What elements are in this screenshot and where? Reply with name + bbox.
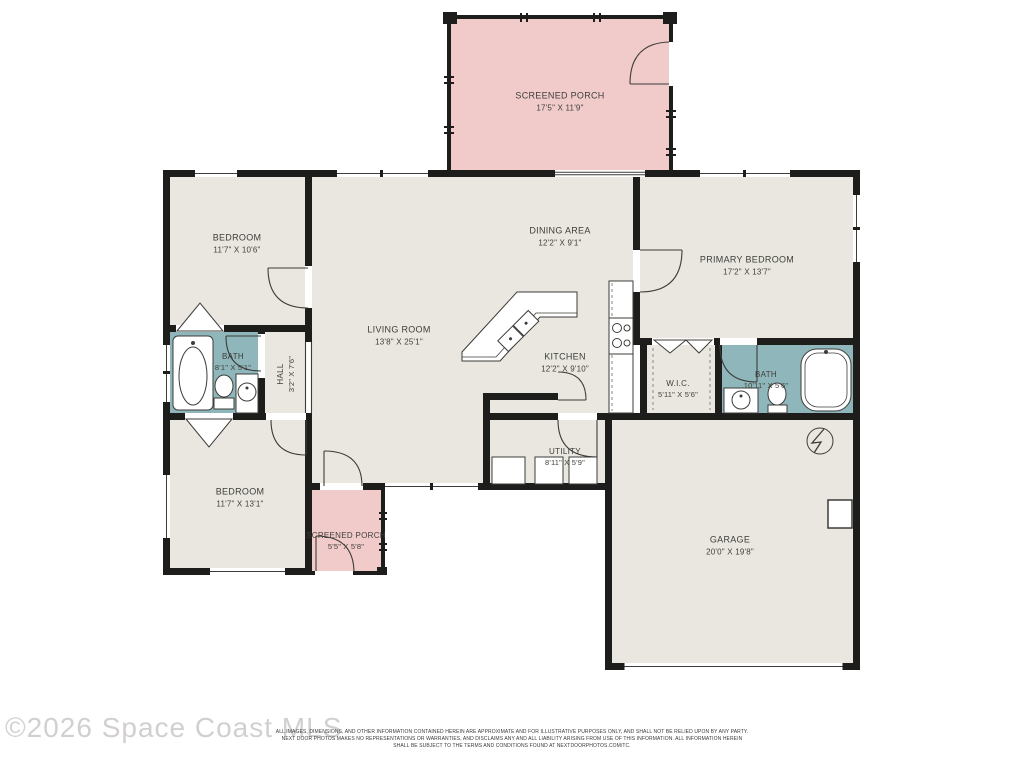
screened-porch-bottom-floor (312, 490, 381, 571)
floor-plan-drawing (0, 0, 1024, 768)
sink-vanity-icon (724, 388, 758, 413)
toilet-icon (214, 375, 234, 409)
floor-plan-page: SCREENED PORCH 17'5" X 11'9" BEDROOM 11'… (0, 0, 1024, 768)
sink-vanity-icon (236, 374, 258, 413)
porch-post (377, 567, 387, 575)
porch-post (663, 12, 677, 24)
bedroom-bottom-floor (170, 420, 305, 568)
hall-floor (265, 332, 305, 413)
washer-dryer-icons (492, 457, 597, 484)
garage-floor (612, 420, 853, 663)
porch-post (443, 12, 457, 24)
disclaimer-line: SHALL BE SUBJECT TO THE TERMS AND CONDIT… (192, 743, 832, 750)
kitchen-counter (609, 281, 633, 413)
toilet-icon (768, 383, 787, 413)
garage-equipment-pad (828, 500, 852, 528)
screened-porch-top-floor (451, 19, 669, 170)
bathtub-icon (173, 336, 213, 410)
disclaimer-line: ALL IMAGES, DIMENSIONS, AND OTHER INFORM… (192, 729, 832, 736)
primary-bedroom-floor (640, 177, 853, 338)
wic-floor (647, 345, 715, 413)
stove-icon (609, 318, 633, 354)
shower-tub-icon (801, 349, 851, 411)
disclaimer-line: NEXT DOOR PHOTOS MAKES NO REPRESENTATION… (192, 736, 832, 743)
disclaimer: ALL IMAGES, DIMENSIONS, AND OTHER INFORM… (192, 729, 832, 750)
